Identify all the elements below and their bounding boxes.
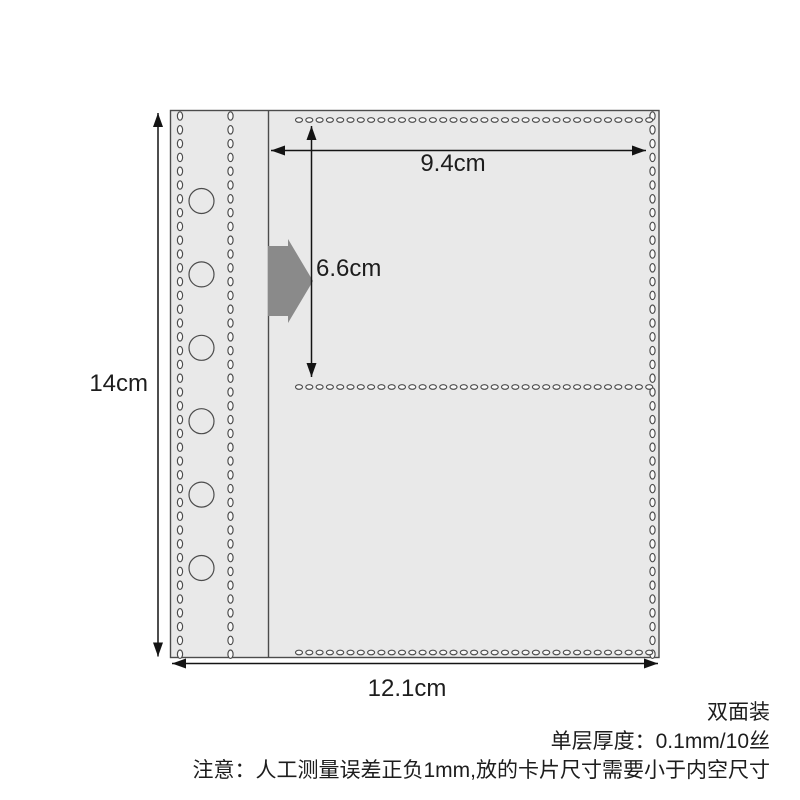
note-caution: 注意：人工测量误差正负1mm,放的卡片尺寸需要小于内空尺寸	[193, 756, 771, 785]
dim-label-page-height: 14cm	[56, 371, 148, 397]
seam-pocket-top	[296, 118, 653, 123]
product-notes: 双面装 单层厚度：0.1mm/10丝 注意：人工测量误差正负1mm,放的卡片尺寸…	[193, 698, 771, 785]
product-dimension-diagram: 14cm 12.1cm 9.4cm 6.6cm 双面装 单层厚度：0.1mm/1…	[0, 0, 800, 800]
note-thickness: 单层厚度：0.1mm/10丝	[193, 727, 771, 756]
sleeve-page	[171, 111, 660, 658]
seam-pocket-middle	[296, 385, 653, 390]
note-binding: 双面装	[193, 698, 771, 727]
dim-label-pocket-height: 6.6cm	[316, 256, 381, 282]
seam-pocket-bottom	[296, 650, 653, 655]
dim-label-pocket-width: 9.4cm	[393, 151, 513, 177]
